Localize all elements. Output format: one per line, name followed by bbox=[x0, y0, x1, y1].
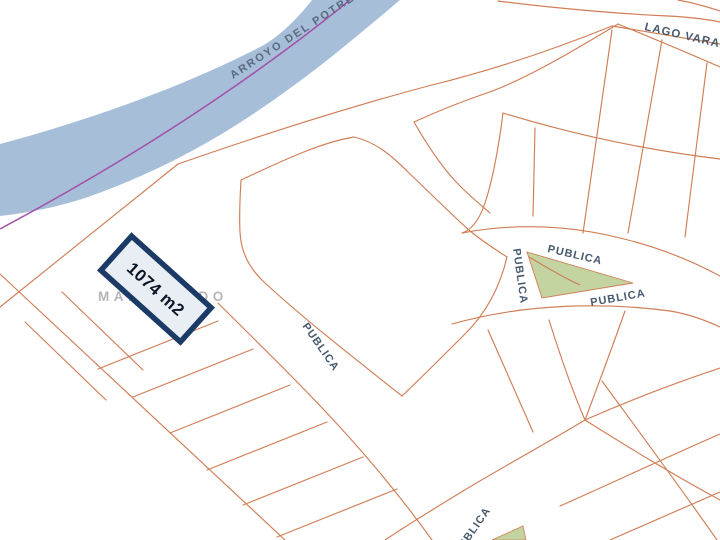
park-triangle-small bbox=[492, 526, 526, 540]
river bbox=[0, 0, 400, 229]
cadastral-map[interactable]: ARROYO DEL POTRERO LAGO VARANA MALDONADO… bbox=[0, 0, 720, 540]
map-canvas[interactable]: ARROYO DEL POTRERO LAGO VARANA MALDONADO… bbox=[0, 0, 720, 540]
street-label-publica-vertical: PUBLICA bbox=[510, 248, 530, 305]
street-label-publica-bottom: PUBLICA bbox=[452, 505, 494, 540]
river-body bbox=[0, 0, 400, 216]
street-label-publica-triangle-bottom: PUBLICA bbox=[589, 287, 646, 309]
street-label-lago-varana: LAGO VARANA bbox=[643, 21, 720, 54]
street-label-publica-southwest: PUBLICA bbox=[300, 321, 342, 374]
